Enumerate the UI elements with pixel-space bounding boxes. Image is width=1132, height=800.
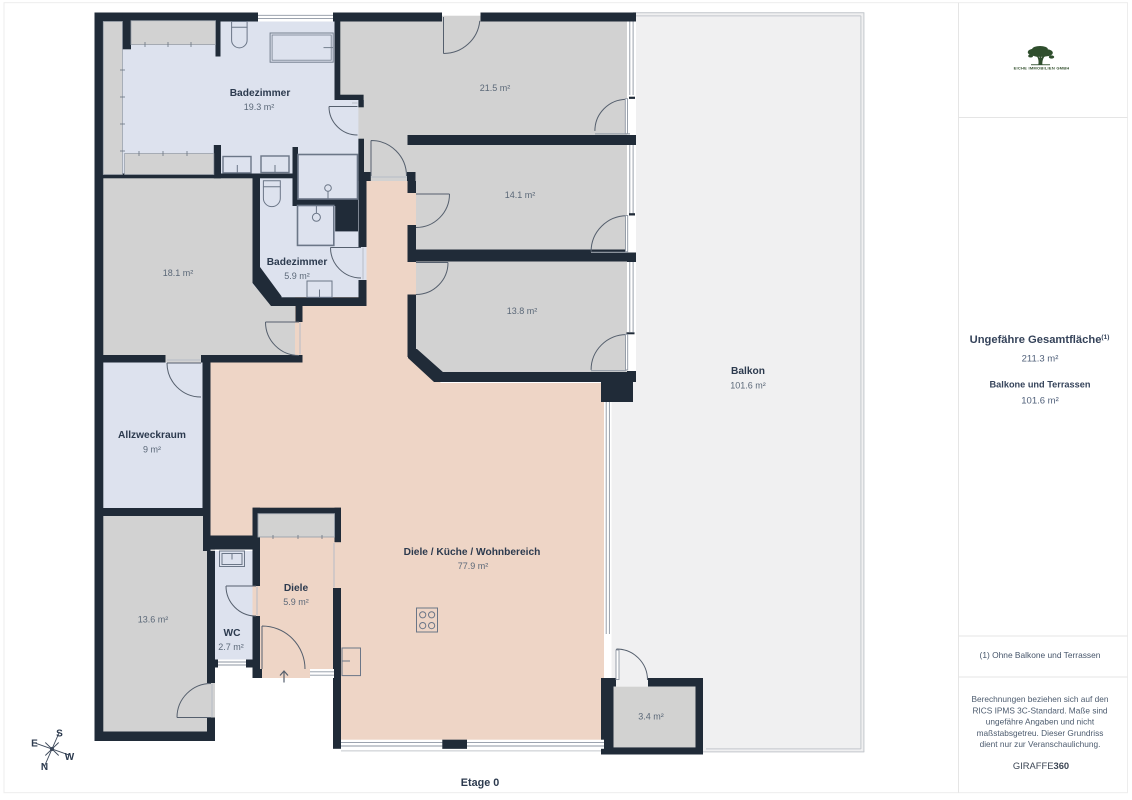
svg-text:18.1 m²: 18.1 m²	[163, 268, 194, 278]
svg-text:211.3 m²: 211.3 m²	[1022, 354, 1059, 365]
svg-text:Ungefähre Gesamtfläche(1): Ungefähre Gesamtfläche(1)	[970, 334, 1110, 346]
svg-text:3.4 m²: 3.4 m²	[638, 712, 664, 722]
svg-text:S: S	[56, 729, 63, 740]
svg-text:RICS IPMS 3C-Standard. Maße si: RICS IPMS 3C-Standard. Maße sind	[972, 705, 1107, 715]
svg-text:13.6 m²: 13.6 m²	[138, 615, 169, 625]
svg-text:2.7 m²: 2.7 m²	[218, 642, 244, 652]
svg-text:Diele / Küche / Wohnbereich: Diele / Küche / Wohnbereich	[404, 547, 541, 558]
svg-text:Balkon: Balkon	[731, 366, 765, 377]
svg-text:Etage 0: Etage 0	[461, 777, 499, 789]
svg-text:ungefähre Angaben und nicht: ungefähre Angaben und nicht	[986, 717, 1095, 727]
svg-text:77.9 m²: 77.9 m²	[458, 561, 489, 571]
svg-text:9 m²: 9 m²	[143, 445, 161, 455]
svg-text:GIRAFFE360: GIRAFFE360	[1013, 760, 1069, 771]
svg-text:Balkone und Terrassen: Balkone und Terrassen	[990, 380, 1091, 390]
svg-text:N: N	[41, 762, 48, 773]
svg-text:EICHE IMMOBILIEN GMBH: EICHE IMMOBILIEN GMBH	[1014, 66, 1070, 71]
svg-text:E: E	[31, 739, 38, 750]
svg-text:(1) Ohne Balkone und Terrassen: (1) Ohne Balkone und Terrassen	[980, 650, 1101, 660]
svg-text:101.6 m²: 101.6 m²	[1021, 396, 1059, 407]
svg-text:5.9 m²: 5.9 m²	[284, 271, 310, 281]
svg-text:13.8 m²: 13.8 m²	[507, 306, 538, 316]
svg-text:WC: WC	[224, 628, 242, 639]
svg-text:maßstabsgetreu. Dieser Grundri: maßstabsgetreu. Dieser Grundriss	[977, 728, 1104, 738]
svg-text:21.5 m²: 21.5 m²	[480, 83, 511, 93]
svg-text:Badezimmer: Badezimmer	[267, 257, 328, 268]
svg-text:Allzweckraum: Allzweckraum	[118, 430, 186, 441]
svg-text:W: W	[65, 752, 75, 763]
svg-text:Diele: Diele	[284, 583, 309, 594]
svg-text:5.9 m²: 5.9 m²	[283, 597, 309, 607]
svg-text:19.3 m²: 19.3 m²	[244, 102, 275, 112]
svg-text:dient nur zur Veranschaulichun: dient nur zur Veranschaulichung.	[980, 739, 1101, 749]
svg-text:14.1 m²: 14.1 m²	[505, 190, 536, 200]
svg-text:Badezimmer: Badezimmer	[230, 88, 291, 99]
svg-text:101.6 m²: 101.6 m²	[730, 381, 766, 391]
svg-text:Berechnungen beziehen sich auf: Berechnungen beziehen sich auf den	[971, 694, 1108, 704]
